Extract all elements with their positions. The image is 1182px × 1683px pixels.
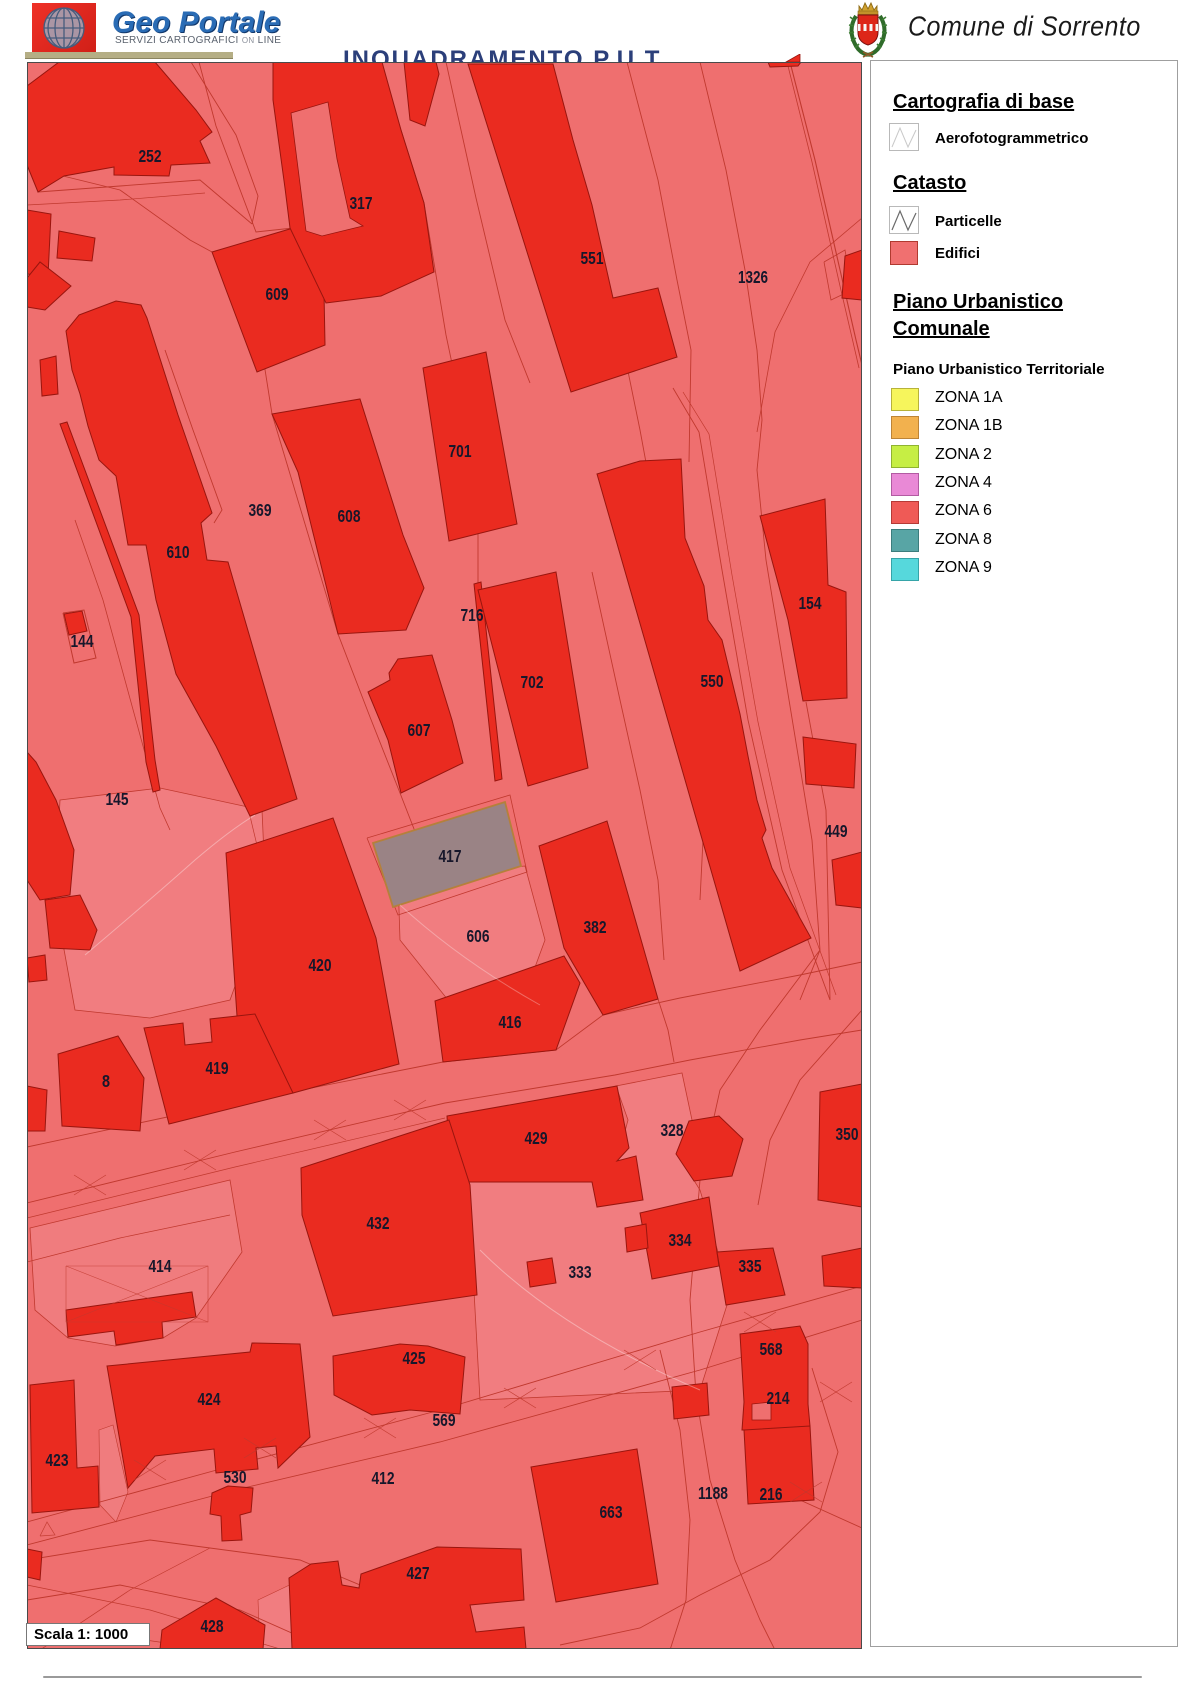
svg-text:425: 425 <box>403 1348 426 1368</box>
svg-text:428: 428 <box>201 1616 224 1636</box>
svg-text:419: 419 <box>206 1058 229 1078</box>
svg-text:350: 350 <box>836 1124 859 1144</box>
svg-text:335: 335 <box>739 1256 762 1276</box>
svg-text:8: 8 <box>102 1071 110 1091</box>
svg-text:569: 569 <box>433 1410 456 1430</box>
svg-text:420: 420 <box>309 955 332 975</box>
svg-text:214: 214 <box>767 1388 790 1408</box>
svg-text:610: 610 <box>167 542 190 562</box>
svg-text:424: 424 <box>198 1389 221 1409</box>
svg-text:252: 252 <box>139 146 162 166</box>
svg-text:551: 551 <box>581 248 604 268</box>
svg-text:449: 449 <box>825 821 848 841</box>
svg-text:328: 328 <box>661 1120 684 1140</box>
svg-text:716: 716 <box>461 605 484 625</box>
svg-text:216: 216 <box>760 1484 783 1504</box>
svg-text:423: 423 <box>46 1450 69 1470</box>
svg-text:702: 702 <box>521 672 544 692</box>
svg-text:608: 608 <box>338 506 361 526</box>
svg-text:663: 663 <box>600 1502 623 1522</box>
svg-text:701: 701 <box>449 441 472 461</box>
svg-text:144: 144 <box>71 631 94 651</box>
svg-text:414: 414 <box>149 1256 172 1276</box>
svg-text:568: 568 <box>760 1339 783 1359</box>
svg-text:333: 333 <box>569 1262 592 1282</box>
svg-text:427: 427 <box>407 1563 430 1583</box>
svg-text:417: 417 <box>439 846 462 866</box>
svg-text:154: 154 <box>799 593 822 613</box>
svg-text:609: 609 <box>266 284 289 304</box>
svg-text:429: 429 <box>525 1128 548 1148</box>
svg-text:369: 369 <box>249 500 272 520</box>
svg-text:607: 607 <box>408 720 431 740</box>
svg-text:1188: 1188 <box>698 1483 728 1503</box>
svg-text:530: 530 <box>224 1467 247 1487</box>
svg-text:416: 416 <box>499 1012 522 1032</box>
svg-text:606: 606 <box>467 926 490 946</box>
svg-text:334: 334 <box>669 1230 692 1250</box>
svg-text:317: 317 <box>350 193 373 213</box>
svg-text:382: 382 <box>584 917 607 937</box>
svg-text:550: 550 <box>701 671 724 691</box>
svg-text:145: 145 <box>106 789 129 809</box>
svg-text:1326: 1326 <box>738 267 768 287</box>
svg-text:412: 412 <box>372 1468 395 1488</box>
svg-text:432: 432 <box>367 1213 390 1233</box>
